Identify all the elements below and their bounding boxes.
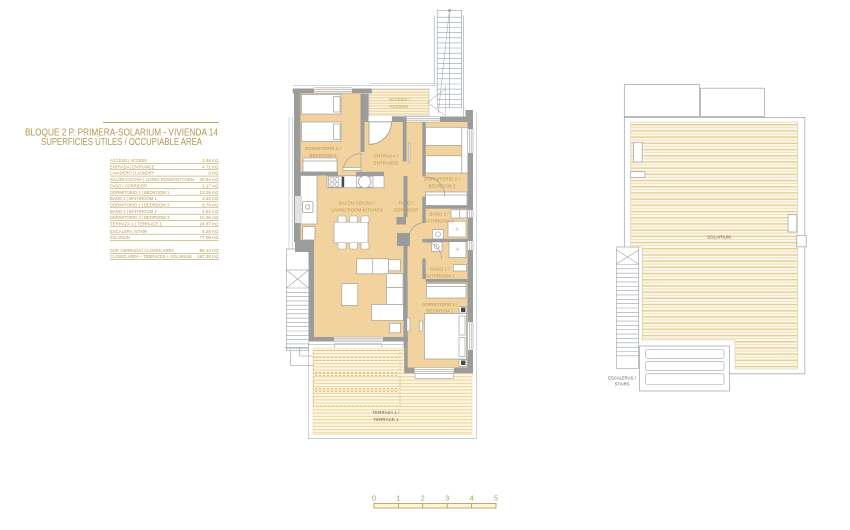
svg-text:5.29 m2: 5.29 m2	[202, 229, 219, 234]
svg-text:PASO /: PASO /	[399, 201, 414, 206]
svg-text:SALÓN-COCINA | LIVING ROOM-KIT: SALÓN-COCINA | LIVING ROOM-KITCHEN	[110, 176, 194, 182]
svg-text:0: 0	[372, 494, 376, 503]
svg-text:SUP. CERRADA | CLOSED AREA: SUP. CERRADA | CLOSED AREA	[110, 248, 175, 253]
svg-text:STAIRS: STAIRS	[615, 382, 630, 387]
svg-text:5: 5	[494, 494, 498, 503]
svg-text:TERRAZA 1 /: TERRAZA 1 /	[372, 410, 400, 415]
svg-text:BATHROOM 2: BATHROOM 2	[424, 218, 454, 223]
svg-text:BEDROOM 2: BEDROOM 2	[429, 183, 456, 188]
svg-text:SOLARIUM: SOLARIUM	[110, 235, 130, 240]
svg-text:0 m2: 0 m2	[208, 171, 219, 176]
svg-text:4.71 m2: 4.71 m2	[202, 164, 219, 169]
svg-text:TERRAZA 1 | TERRACE 1: TERRAZA 1 | TERRACE 1	[110, 221, 162, 226]
svg-text:24.87 m2: 24.87 m2	[200, 221, 219, 226]
svg-text:SUPERFICIES ÚTILES / OCCUPIABL: SUPERFICIES ÚTILES / OCCUPIABLE AREA	[41, 135, 202, 148]
svg-text:ENTRADA | ENTRANCE: ENTRADA | ENTRANCE	[110, 164, 155, 169]
svg-text:ENTRANCE: ENTRANCE	[374, 160, 399, 165]
svg-text:CLOSED AREA + TERRACES + SOLAR: CLOSED AREA + TERRACES + SOLARIUM	[110, 254, 192, 259]
svg-text:3: 3	[445, 494, 449, 503]
svg-text:3.32 m2: 3.32 m2	[202, 196, 219, 201]
svg-text:BATHROOM 1: BATHROOM 1	[425, 273, 455, 278]
svg-text:4: 4	[470, 494, 474, 503]
svg-text:DORMITORIO 3 /: DORMITORIO 3 /	[305, 146, 341, 151]
svg-text:DORMITORIO 1 | BEDROOM 1: DORMITORIO 1 | BEDROOM 1	[110, 190, 170, 195]
svg-text:SALÓN-COCINA /: SALÓN-COCINA /	[339, 201, 376, 206]
svg-text:ESCALERAS /: ESCALERAS /	[608, 376, 636, 381]
svg-text:1: 1	[396, 494, 400, 503]
svg-text:30.54 m2: 30.54 m2	[200, 177, 219, 182]
svg-text:SOLARIUM: SOLARIUM	[707, 235, 731, 240]
svg-text:BEDROOM 3: BEDROOM 3	[310, 153, 337, 158]
svg-text:10.06 m2: 10.06 m2	[200, 215, 219, 220]
svg-text:ACCESO /: ACCESO /	[388, 97, 410, 102]
svg-text:BAÑO 2 | BATHROOM 2: BAÑO 2 | BATHROOM 2	[110, 208, 157, 214]
svg-text:2: 2	[421, 494, 425, 503]
svg-text:BAÑO 2 /: BAÑO 2 /	[429, 212, 449, 217]
svg-text:DORMITORIO 2 /: DORMITORIO 2 /	[424, 177, 460, 182]
svg-text:DORMITORIO 3 | BEDROOM 3: DORMITORIO 3 | BEDROOM 3	[110, 215, 170, 220]
svg-text:ENTRADA /: ENTRADA /	[374, 154, 399, 159]
svg-text:2.62 m2: 2.62 m2	[202, 209, 219, 214]
svg-text:DORMITORIO 1 /: DORMITORIO 1 /	[422, 302, 458, 307]
svg-text:13.05 m2: 13.05 m2	[200, 190, 219, 195]
svg-text:LAVADERO | LAUNDRY: LAVADERO | LAUNDRY	[110, 171, 155, 176]
svg-text:PASO | CORRIDOR: PASO | CORRIDOR	[110, 183, 148, 188]
svg-text:77.09 m2: 77.09 m2	[200, 235, 219, 240]
svg-text:BAÑO 1 /: BAÑO 1 /	[430, 267, 450, 272]
svg-text:ACCESO | ACCESS: ACCESO | ACCESS	[110, 158, 147, 163]
svg-text:1.17 m2: 1.17 m2	[202, 183, 219, 188]
svg-text:DORMITORIO 2 | BEDROOM 2: DORMITORIO 2 | BEDROOM 2	[110, 202, 170, 207]
svg-text:BEDROOM 1: BEDROOM 1	[427, 309, 454, 314]
svg-text:ACCESS: ACCESS	[390, 104, 408, 109]
svg-text:BAÑO 1 | BATHROOM 1: BAÑO 1 | BATHROOM 1	[110, 195, 157, 201]
svg-text:3.46 m2: 3.46 m2	[202, 158, 219, 163]
svg-text:9.79 m2: 9.79 m2	[202, 202, 219, 207]
svg-text:90.13 m2: 90.13 m2	[200, 248, 219, 253]
svg-text:LIVING ROOM-KITCHEN: LIVING ROOM-KITCHEN	[331, 207, 382, 212]
svg-text:ESCALERA /STAIR: ESCALERA /STAIR	[110, 229, 148, 234]
svg-text:TERRACE 1: TERRACE 1	[373, 417, 399, 422]
svg-text:197.38 m2: 197.38 m2	[197, 254, 219, 259]
svg-text:CORRIDOR: CORRIDOR	[394, 207, 418, 212]
